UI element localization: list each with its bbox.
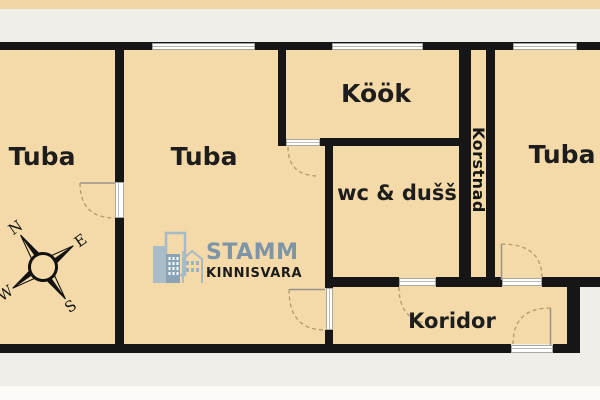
room-label-tuba-middle: Tuba — [154, 143, 254, 171]
logo-building-icon — [152, 231, 204, 285]
door-arc-tuba-middle — [289, 290, 325, 331]
room-label-tuba-left: Tuba — [0, 143, 87, 171]
door-arc-tuba-right — [502, 244, 543, 278]
compass-letter-w: W — [0, 281, 17, 305]
compass-letter-s: S — [61, 296, 80, 317]
door-swing-layer — [0, 0, 600, 400]
room-label-kook: Köök — [326, 80, 426, 108]
logo-tagline: KINNISVARA — [206, 266, 302, 281]
door-arc-entrance — [513, 308, 551, 344]
door-arc-kitchen — [288, 147, 319, 176]
room-label-tuba-right: Tuba — [512, 141, 600, 169]
room-label-wc-duss: wc & dušš — [337, 182, 457, 205]
room-label-koridor: Koridor — [402, 310, 502, 333]
compass-letter-e: E — [71, 230, 90, 251]
room-label-korstnad: Korstnad — [467, 120, 488, 220]
compass-letter-n: N — [5, 217, 26, 239]
floor-plan: Tuba Tuba Köök wc & dušš Tuba Koridor Ko… — [0, 0, 600, 400]
logo-name: STAMM — [206, 240, 298, 265]
compass-rose: N E S W — [0, 212, 98, 322]
